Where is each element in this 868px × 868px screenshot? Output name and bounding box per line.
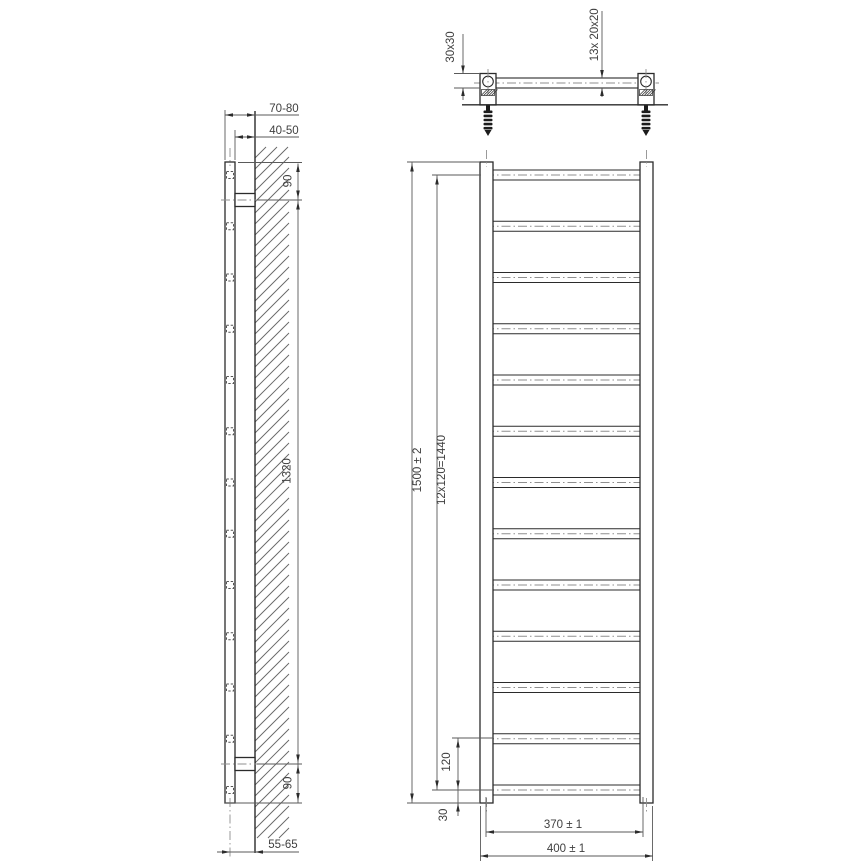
hatch-line — [255, 377, 289, 411]
hatch-line — [255, 421, 289, 455]
dim-top-offset-label: 90 — [283, 175, 295, 188]
dim-arrow — [247, 113, 255, 117]
dim-tube-profile-label: 30x30 — [445, 31, 457, 62]
dim-arrow — [635, 830, 643, 834]
hatch-line — [255, 696, 289, 730]
dim-arrow — [456, 804, 460, 812]
hatch-line — [255, 663, 289, 697]
screw-thread — [484, 115, 493, 118]
dim-arrow — [461, 88, 465, 96]
hatch-line — [255, 564, 289, 598]
hatch-line — [255, 641, 289, 675]
hatch-line — [255, 740, 289, 774]
hatch-line — [255, 718, 289, 752]
hatch-line — [255, 674, 289, 708]
hatch-line — [255, 147, 266, 158]
dim-arrow — [235, 135, 243, 139]
hatch-line — [255, 652, 289, 686]
dim-arrow — [600, 88, 604, 96]
hatch-line — [255, 234, 289, 268]
dim-rung-profile-label: 20x20 — [589, 8, 601, 39]
screw-thread — [642, 115, 651, 118]
top-view: 30x30 20x20 13x — [445, 8, 668, 136]
dim-overall-width-label: 400 ± 1 — [547, 843, 585, 855]
hatch-line — [255, 597, 289, 631]
hatch-line — [255, 300, 289, 334]
hatch-line — [279, 828, 289, 838]
hatch-line — [255, 553, 289, 587]
wall-screws — [484, 106, 651, 137]
hatch-line — [255, 729, 289, 763]
hatch-line — [255, 311, 289, 345]
hatch-line — [255, 147, 277, 169]
dim-arrow — [296, 755, 300, 763]
hatch-line — [255, 366, 289, 400]
dim-bottom-label: 30 — [438, 809, 450, 822]
hatch-line — [255, 575, 289, 609]
dim-arrow — [456, 781, 460, 789]
dim-arrow — [296, 202, 300, 210]
dim-arrow — [645, 854, 653, 858]
dim-arrow — [461, 66, 465, 74]
screw-thread — [484, 111, 493, 114]
hatch-line — [255, 520, 289, 554]
dim-arrow — [296, 793, 300, 801]
screw-thread — [484, 119, 493, 122]
dim-arrow — [600, 70, 604, 78]
dim-arrow — [480, 854, 488, 858]
hatch-line — [255, 542, 289, 576]
dim-arrow — [222, 850, 230, 854]
dim-overall-height-label: 1500 ± 2 — [412, 448, 424, 493]
hatch-line — [255, 190, 289, 224]
hatch-line — [255, 322, 289, 356]
hatch-line — [255, 630, 289, 664]
hatch-line — [255, 278, 289, 312]
dim-bracket-spacing-label: 1320 — [282, 458, 294, 484]
dim-arrow — [296, 164, 300, 172]
hatch-line — [255, 498, 289, 532]
dim-arrow — [456, 740, 460, 748]
dim-arrow — [410, 164, 414, 172]
hatch-line — [255, 223, 289, 257]
screw-thread — [642, 111, 651, 114]
hatch-line — [255, 399, 289, 433]
dim-rung-count-label: 13x — [589, 42, 601, 61]
rungs — [485, 170, 648, 795]
left-tube — [480, 162, 493, 803]
dim-arrow — [296, 191, 300, 199]
dim-arrow — [296, 766, 300, 774]
dim-bottom-offset-label: 90 — [283, 777, 295, 790]
wall-hatch — [255, 147, 289, 838]
dim-pitch-label: 120 — [441, 752, 453, 771]
hatch-line — [268, 817, 289, 838]
hatch-line — [255, 201, 289, 235]
hatch-line — [255, 795, 289, 829]
dim-arrow — [225, 113, 233, 117]
dim-arrow — [486, 830, 494, 834]
page: { "drawing": { "background": "#ffffff", … — [0, 0, 868, 868]
front-view: 1500 ± 2 12x120=1440 120 30 370 ± 1 400 … — [407, 150, 653, 861]
dim-wall-center-label: 55-65 — [268, 839, 297, 851]
right-tube — [640, 162, 653, 803]
dim-wall-back-label: 40-50 — [269, 125, 298, 137]
dim-arrow — [255, 850, 263, 854]
hatch-line — [255, 355, 289, 389]
screw-thread — [642, 119, 651, 122]
wall-plug-hatch — [481, 90, 655, 96]
hatch-line — [255, 685, 289, 719]
dim-arrow — [410, 794, 414, 802]
hatch-line — [255, 608, 289, 642]
dim-arrow — [435, 781, 439, 789]
side-view: 70-80 40-50 90 1320 90 55-65 — [217, 103, 302, 857]
hatch-line — [255, 212, 289, 246]
hatch-line — [255, 256, 289, 290]
technical-drawing: 30x30 20x20 13x — [0, 0, 868, 868]
hatch-line — [255, 707, 289, 741]
hatch-line — [255, 586, 289, 620]
dim-arrow — [247, 135, 255, 139]
hatch-line — [255, 487, 289, 521]
screw-thread — [642, 127, 651, 130]
hatch-line — [255, 619, 289, 653]
hatch-line — [255, 531, 289, 565]
dim-inner-width-label: 370 ± 1 — [544, 819, 582, 831]
screw-thread — [642, 123, 651, 126]
hatch-line — [255, 245, 289, 279]
dim-pitch-total-label: 12x120=1440 — [436, 435, 448, 505]
dim-wall-front-label: 70-80 — [269, 103, 298, 115]
hatch-line — [255, 344, 289, 378]
hatch-line — [255, 388, 289, 422]
hatch-line — [255, 410, 289, 444]
hatch-line — [255, 333, 289, 367]
screw-tip — [485, 130, 492, 136]
screw-thread — [484, 123, 493, 126]
hatch-line — [255, 509, 289, 543]
dim-arrow — [435, 177, 439, 185]
hatch-line — [255, 289, 289, 323]
screw-thread — [484, 127, 493, 130]
hatch-line — [255, 267, 289, 301]
screw-tip — [643, 130, 650, 136]
